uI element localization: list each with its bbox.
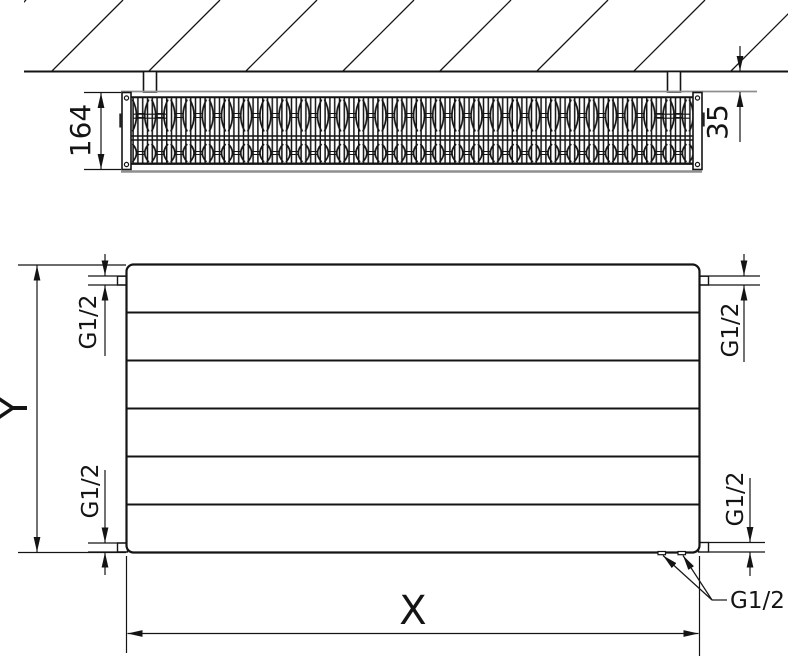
bottom-port-nub [678, 552, 686, 555]
drawing-canvas: 164 35 Y [0, 0, 800, 656]
dim-connection-top-right: G1/2 [700, 254, 761, 362]
height-dim-label: Y [0, 395, 37, 421]
convector-fins [131, 97, 693, 165]
mounting-bracket-left [144, 72, 157, 93]
dim-wall-clearance: 35 [701, 46, 740, 142]
dim-height: Y [0, 265, 126, 553]
width-dim-label: X [399, 588, 426, 634]
label-connection-bottom: G1/2 [663, 556, 785, 615]
radiator-technical-drawing: 164 35 Y [0, 0, 800, 656]
dim-depth: 164 [64, 93, 121, 170]
connection-label-top-right: G1/2 [718, 303, 744, 358]
dim-connection-bottom-left: G1/2 [78, 464, 127, 575]
front-view: Y X G1/2 G1/2 [0, 254, 785, 656]
dim-connection-top-left: G1/2 [76, 254, 127, 356]
wall-clearance-dim-label: 35 [701, 104, 734, 140]
dim-connection-bottom-right: G1/2 [709, 472, 766, 576]
end-cap-left [122, 93, 131, 170]
top-section-view: 164 35 [0, 0, 800, 172]
connection-label-top-left: G1/2 [76, 295, 102, 350]
wall-hatch [0, 0, 800, 71]
depth-dim-label: 164 [64, 104, 97, 157]
connection-label-bottom-right: G1/2 [723, 472, 749, 527]
radiator-section-body [119, 92, 757, 172]
connection-label-bottom-left: G1/2 [78, 464, 104, 519]
connection-label-bottom: G1/2 [730, 588, 785, 614]
mounting-bracket-right [668, 72, 681, 93]
side-tab-left [119, 114, 122, 128]
bottom-port-nub [658, 552, 666, 555]
dim-width: X [127, 556, 700, 656]
